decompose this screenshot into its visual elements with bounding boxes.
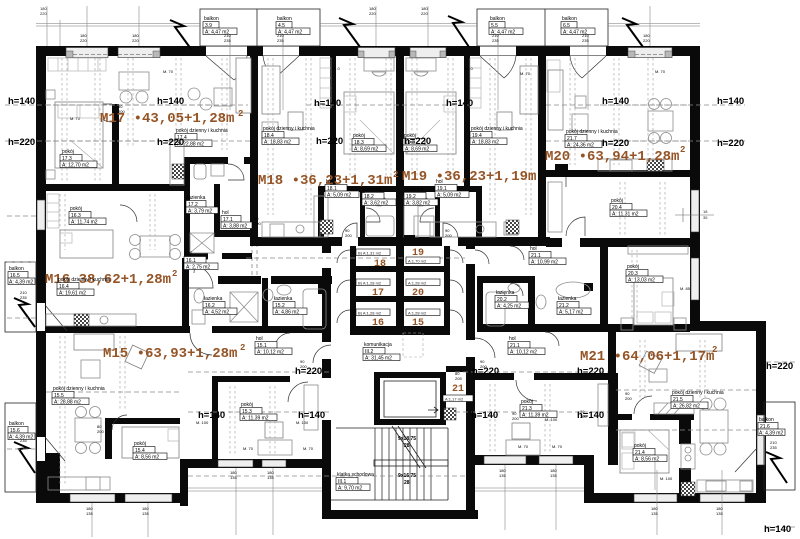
svg-text:łazienka: łazienka bbox=[558, 296, 577, 302]
svg-text:łazienka: łazienka bbox=[274, 296, 293, 302]
svg-text:A: 8,56 m2: A: 8,56 m2 bbox=[135, 454, 159, 460]
svg-text:2: 2 bbox=[172, 269, 177, 279]
svg-text:A: 2,75 m2: A: 2,75 m2 bbox=[186, 264, 210, 270]
svg-text:h=140: h=140 bbox=[198, 410, 225, 421]
svg-text:A: 9,70 m2: A: 9,70 m2 bbox=[338, 485, 362, 491]
svg-text:A: 4,25 m2: A: 4,25 m2 bbox=[497, 303, 521, 309]
svg-text:A: 4,47 m2: A: 4,47 m2 bbox=[278, 29, 302, 35]
svg-text:220: 220 bbox=[132, 38, 139, 43]
svg-text:pokój: pokój bbox=[134, 441, 146, 447]
svg-text:M. 70: M. 70 bbox=[552, 444, 563, 449]
svg-text:balkon: balkon bbox=[490, 16, 505, 22]
svg-text:A: 10,12 m2: A: 10,12 m2 bbox=[510, 349, 537, 355]
svg-text:hol: hol bbox=[436, 179, 443, 185]
svg-text:pokój dzienny i kuchnia: pokój dzienny i kuchnia bbox=[566, 129, 618, 135]
svg-text:łazienka: łazienka bbox=[187, 195, 206, 201]
svg-text:h=220: h=220 bbox=[717, 138, 744, 149]
svg-text:balkon: balkon bbox=[277, 16, 292, 22]
svg-text:220: 220 bbox=[421, 11, 428, 16]
svg-text:h=220: h=220 bbox=[602, 138, 629, 149]
svg-text:9x18,75: 9x18,75 bbox=[398, 436, 416, 442]
svg-text:135: 135 bbox=[550, 473, 557, 478]
svg-text:2: 2 bbox=[240, 343, 245, 353]
svg-text:hol: hol bbox=[509, 336, 516, 342]
svg-text:35: 35 bbox=[703, 215, 708, 220]
svg-text:M. 100: M. 100 bbox=[660, 476, 673, 481]
svg-text:M. 70: M. 70 bbox=[303, 446, 314, 451]
svg-text:16: 16 bbox=[372, 318, 384, 329]
svg-text:A: 4,39 m2: A: 4,39 m2 bbox=[9, 434, 33, 440]
svg-text:h=220: h=220 bbox=[472, 366, 499, 377]
svg-text:balkon: balkon bbox=[9, 421, 24, 427]
svg-text:M. 70: M. 70 bbox=[520, 71, 531, 76]
svg-text:21: 21 bbox=[452, 384, 464, 395]
svg-text:A: 8,69 m2: A: 8,69 m2 bbox=[354, 146, 378, 152]
svg-text:A: 5,17 m2: A: 5,17 m2 bbox=[559, 309, 583, 315]
svg-text:135: 135 bbox=[716, 511, 723, 516]
svg-text:18: 18 bbox=[703, 209, 708, 214]
svg-text:200: 200 bbox=[345, 233, 352, 238]
svg-text:h=140: h=140 bbox=[314, 98, 341, 109]
svg-text:220: 220 bbox=[80, 38, 87, 43]
svg-text:A: 3,79 m2: A: 3,79 m2 bbox=[188, 208, 212, 214]
svg-text:20: 20 bbox=[412, 288, 424, 299]
svg-text:h=140: h=140 bbox=[577, 410, 604, 421]
svg-text:135: 135 bbox=[651, 511, 658, 516]
svg-text:hol: hol bbox=[222, 210, 229, 216]
svg-text:A: 10,12 m2: A: 10,12 m2 bbox=[257, 349, 284, 355]
svg-text:pokój dzienny i kuchnia: pokój dzienny i kuchnia bbox=[176, 128, 228, 134]
svg-text:A: 3,82 m2: A: 3,82 m2 bbox=[406, 200, 430, 206]
svg-text:135: 135 bbox=[86, 511, 93, 516]
svg-text:200: 200 bbox=[445, 233, 452, 238]
svg-text:200: 200 bbox=[512, 416, 519, 421]
svg-text:balkon: balkon bbox=[9, 266, 24, 272]
svg-text:h=220: h=220 bbox=[157, 137, 184, 148]
svg-text:łazienka: łazienka bbox=[363, 187, 382, 193]
svg-text:A: 11,39 m2: A: 11,39 m2 bbox=[522, 412, 549, 418]
svg-text:A: 3,62 m2: A: 3,62 m2 bbox=[364, 200, 388, 206]
svg-text:M. 0: M. 0 bbox=[332, 66, 341, 71]
svg-text:28: 28 bbox=[404, 443, 410, 449]
svg-text:A: 11,31 m2: A: 11,31 m2 bbox=[612, 211, 639, 217]
svg-text:pokój: pokój bbox=[634, 443, 646, 449]
svg-text:2: 2 bbox=[238, 109, 243, 119]
svg-text:hol: hol bbox=[530, 246, 537, 252]
svg-text:h=140: h=140 bbox=[602, 96, 629, 107]
svg-text:pokój: pokój bbox=[611, 198, 623, 204]
svg-text:A: 4,86 m2: A: 4,86 m2 bbox=[275, 309, 299, 315]
svg-text:19: 19 bbox=[412, 248, 424, 259]
svg-text:A:1,28 m2: A:1,28 m2 bbox=[408, 310, 427, 315]
svg-text:A: 4,52 m2: A: 4,52 m2 bbox=[205, 309, 229, 315]
svg-text:h=140: h=140 bbox=[717, 96, 744, 107]
svg-text:pokój: pokój bbox=[62, 149, 74, 155]
svg-text:balkon: balkon bbox=[204, 16, 219, 22]
svg-text:235: 235 bbox=[492, 38, 499, 43]
svg-text:28: 28 bbox=[404, 480, 410, 486]
svg-text:135: 135 bbox=[230, 475, 237, 480]
svg-text:pokój: pokój bbox=[353, 133, 365, 139]
svg-text:18: 18 bbox=[374, 259, 386, 270]
svg-text:h=220: h=220 bbox=[577, 366, 604, 377]
svg-text:220: 220 bbox=[40, 11, 47, 16]
svg-text:M. 70: M. 70 bbox=[518, 444, 529, 449]
svg-text:A: 28,88 m2: A: 28,88 m2 bbox=[54, 399, 81, 405]
svg-text:A:1,28 m2: A:1,28 m2 bbox=[408, 280, 427, 285]
svg-text:h=140: h=140 bbox=[157, 96, 184, 107]
svg-text:hol: hol bbox=[326, 179, 333, 185]
svg-text:A:1,17 m2: A:1,17 m2 bbox=[445, 396, 464, 401]
svg-text:9x16,75: 9x16,75 bbox=[398, 473, 416, 479]
svg-text:hol: hol bbox=[185, 251, 192, 257]
svg-text:M. 0: M. 0 bbox=[465, 66, 474, 71]
svg-text:h=220: h=220 bbox=[316, 136, 343, 147]
svg-text:A: 19,61 m2: A: 19,61 m2 bbox=[59, 290, 86, 296]
svg-text:A: 5,09 m2: A: 5,09 m2 bbox=[437, 192, 461, 198]
svg-text:A: 11,74 m2: A: 11,74 m2 bbox=[71, 219, 98, 225]
svg-text:A: 4,47 m2: A: 4,47 m2 bbox=[491, 29, 515, 35]
svg-text:A: 5,09 m2: A: 5,09 m2 bbox=[327, 192, 351, 198]
svg-text:200: 200 bbox=[254, 221, 261, 226]
svg-text:łazienka: łazienka bbox=[204, 296, 223, 302]
svg-text:A: 13,03 m2: A: 13,03 m2 bbox=[628, 277, 655, 283]
svg-text:135: 135 bbox=[142, 511, 149, 516]
svg-text:pokój dzienny i kuchnia: pokój dzienny i kuchnia bbox=[58, 277, 110, 283]
svg-text:M15 •63,93+1,28m: M15 •63,93+1,28m bbox=[103, 346, 237, 362]
svg-text:2: 2 bbox=[712, 345, 717, 355]
svg-text:A: 12,70 m2: A: 12,70 m2 bbox=[62, 162, 89, 168]
svg-text:M19 •36,23+1,19m: M19 •36,23+1,19m bbox=[402, 169, 536, 185]
svg-text:łazienka: łazienka bbox=[496, 290, 515, 296]
svg-text:A: 8,69 m2: A: 8,69 m2 bbox=[405, 146, 429, 152]
svg-text:135: 135 bbox=[267, 475, 274, 480]
svg-text:A: 8,56 m2: A: 8,56 m2 bbox=[635, 456, 659, 462]
svg-text:200: 200 bbox=[97, 429, 104, 434]
svg-text:200: 200 bbox=[625, 396, 632, 401]
svg-text:A: 18,83 m2: A: 18,83 m2 bbox=[264, 139, 291, 145]
svg-text:M. 85: M. 85 bbox=[680, 286, 691, 291]
svg-text:2: 2 bbox=[393, 170, 398, 180]
svg-text:klatka schodowa: klatka schodowa bbox=[337, 472, 374, 478]
svg-text:A:1,70 m2: A:1,70 m2 bbox=[408, 258, 427, 263]
svg-text:M. 70: M. 70 bbox=[243, 446, 254, 451]
svg-text:A: 10,99 m2: A: 10,99 m2 bbox=[531, 259, 558, 265]
svg-text:M. 70: M. 70 bbox=[70, 116, 81, 121]
svg-text:pokój: pokój bbox=[627, 264, 639, 270]
svg-text:pokój dzienny i kuchnia: pokój dzienny i kuchnia bbox=[672, 390, 724, 396]
svg-text:h=140: h=140 bbox=[471, 410, 498, 421]
svg-text:h=140: h=140 bbox=[8, 96, 35, 107]
svg-text:hol: hol bbox=[256, 336, 263, 342]
svg-text:B) A:1,28 m2: B) A:1,28 m2 bbox=[358, 280, 382, 285]
svg-text:A: 18,83 m2: A: 18,83 m2 bbox=[472, 139, 499, 145]
svg-text:pokój dzienny i kuchnia: pokój dzienny i kuchnia bbox=[263, 126, 315, 132]
svg-text:135: 135 bbox=[499, 473, 506, 478]
svg-text:h=220: h=220 bbox=[766, 361, 793, 372]
svg-text:M. 70: M. 70 bbox=[163, 69, 174, 74]
svg-text:A: 4,47 m2: A: 4,47 m2 bbox=[563, 29, 587, 35]
svg-text:235: 235 bbox=[20, 295, 27, 300]
svg-text:pokój: pokój bbox=[70, 206, 82, 212]
svg-text:łazienka: łazienka bbox=[405, 187, 424, 193]
svg-text:235: 235 bbox=[277, 38, 284, 43]
svg-text:A: 4,39 m2: A: 4,39 m2 bbox=[9, 279, 33, 285]
svg-text:A: 3,88 m2: A: 3,88 m2 bbox=[223, 223, 247, 229]
svg-text:15: 15 bbox=[412, 318, 424, 329]
svg-text:h=140: h=140 bbox=[298, 410, 325, 421]
svg-text:A: 26,82 m2: A: 26,82 m2 bbox=[673, 403, 700, 409]
svg-text:B) A:1,28 m2: B) A:1,28 m2 bbox=[358, 310, 382, 315]
svg-text:h=140: h=140 bbox=[446, 98, 473, 109]
svg-text:M. 70: M. 70 bbox=[655, 69, 666, 74]
svg-text:pokój: pokój bbox=[521, 399, 533, 405]
svg-text:A: 31,45 m2: A: 31,45 m2 bbox=[365, 355, 392, 361]
svg-text:220: 220 bbox=[369, 11, 376, 16]
svg-text:M20 •63,94+1,28m: M20 •63,94+1,28m bbox=[545, 149, 679, 165]
svg-text:235: 235 bbox=[770, 445, 777, 450]
svg-text:h=140: h=140 bbox=[764, 524, 791, 535]
svg-text:A: 4,47 m2: A: 4,47 m2 bbox=[205, 29, 229, 35]
svg-text:balkon: balkon bbox=[759, 417, 774, 423]
svg-text:220: 220 bbox=[643, 38, 650, 43]
svg-text:h=220: h=220 bbox=[8, 137, 35, 148]
svg-text:235: 235 bbox=[224, 38, 231, 43]
svg-text:2: 2 bbox=[680, 145, 685, 155]
svg-text:A: 4,39 m2: A: 4,39 m2 bbox=[759, 430, 783, 436]
svg-text:B) A:1,31 m2: B) A:1,31 m2 bbox=[358, 250, 382, 255]
svg-text:pokój dzienny i kuchnia: pokój dzienny i kuchnia bbox=[471, 126, 523, 132]
svg-text:A: 11,39 m2: A: 11,39 m2 bbox=[242, 415, 269, 421]
svg-text:pokój dzienny i kuchnia: pokój dzienny i kuchnia bbox=[53, 386, 105, 392]
svg-text:M21 •64,06+1,17m: M21 •64,06+1,17m bbox=[580, 349, 714, 365]
svg-text:M17 •43,05+1,28m: M17 •43,05+1,28m bbox=[100, 111, 234, 127]
svg-text:pokój: pokój bbox=[241, 402, 253, 408]
svg-text:A: 24,36 m2: A: 24,36 m2 bbox=[567, 142, 594, 148]
svg-text:235: 235 bbox=[582, 38, 589, 43]
svg-text:h=220: h=220 bbox=[404, 136, 431, 147]
svg-text:balkon: balkon bbox=[562, 16, 577, 22]
svg-text:komunikacja: komunikacja bbox=[364, 342, 392, 348]
svg-text:h=220: h=220 bbox=[295, 366, 322, 377]
svg-text:17: 17 bbox=[372, 288, 384, 299]
svg-text:205: 205 bbox=[455, 376, 462, 381]
